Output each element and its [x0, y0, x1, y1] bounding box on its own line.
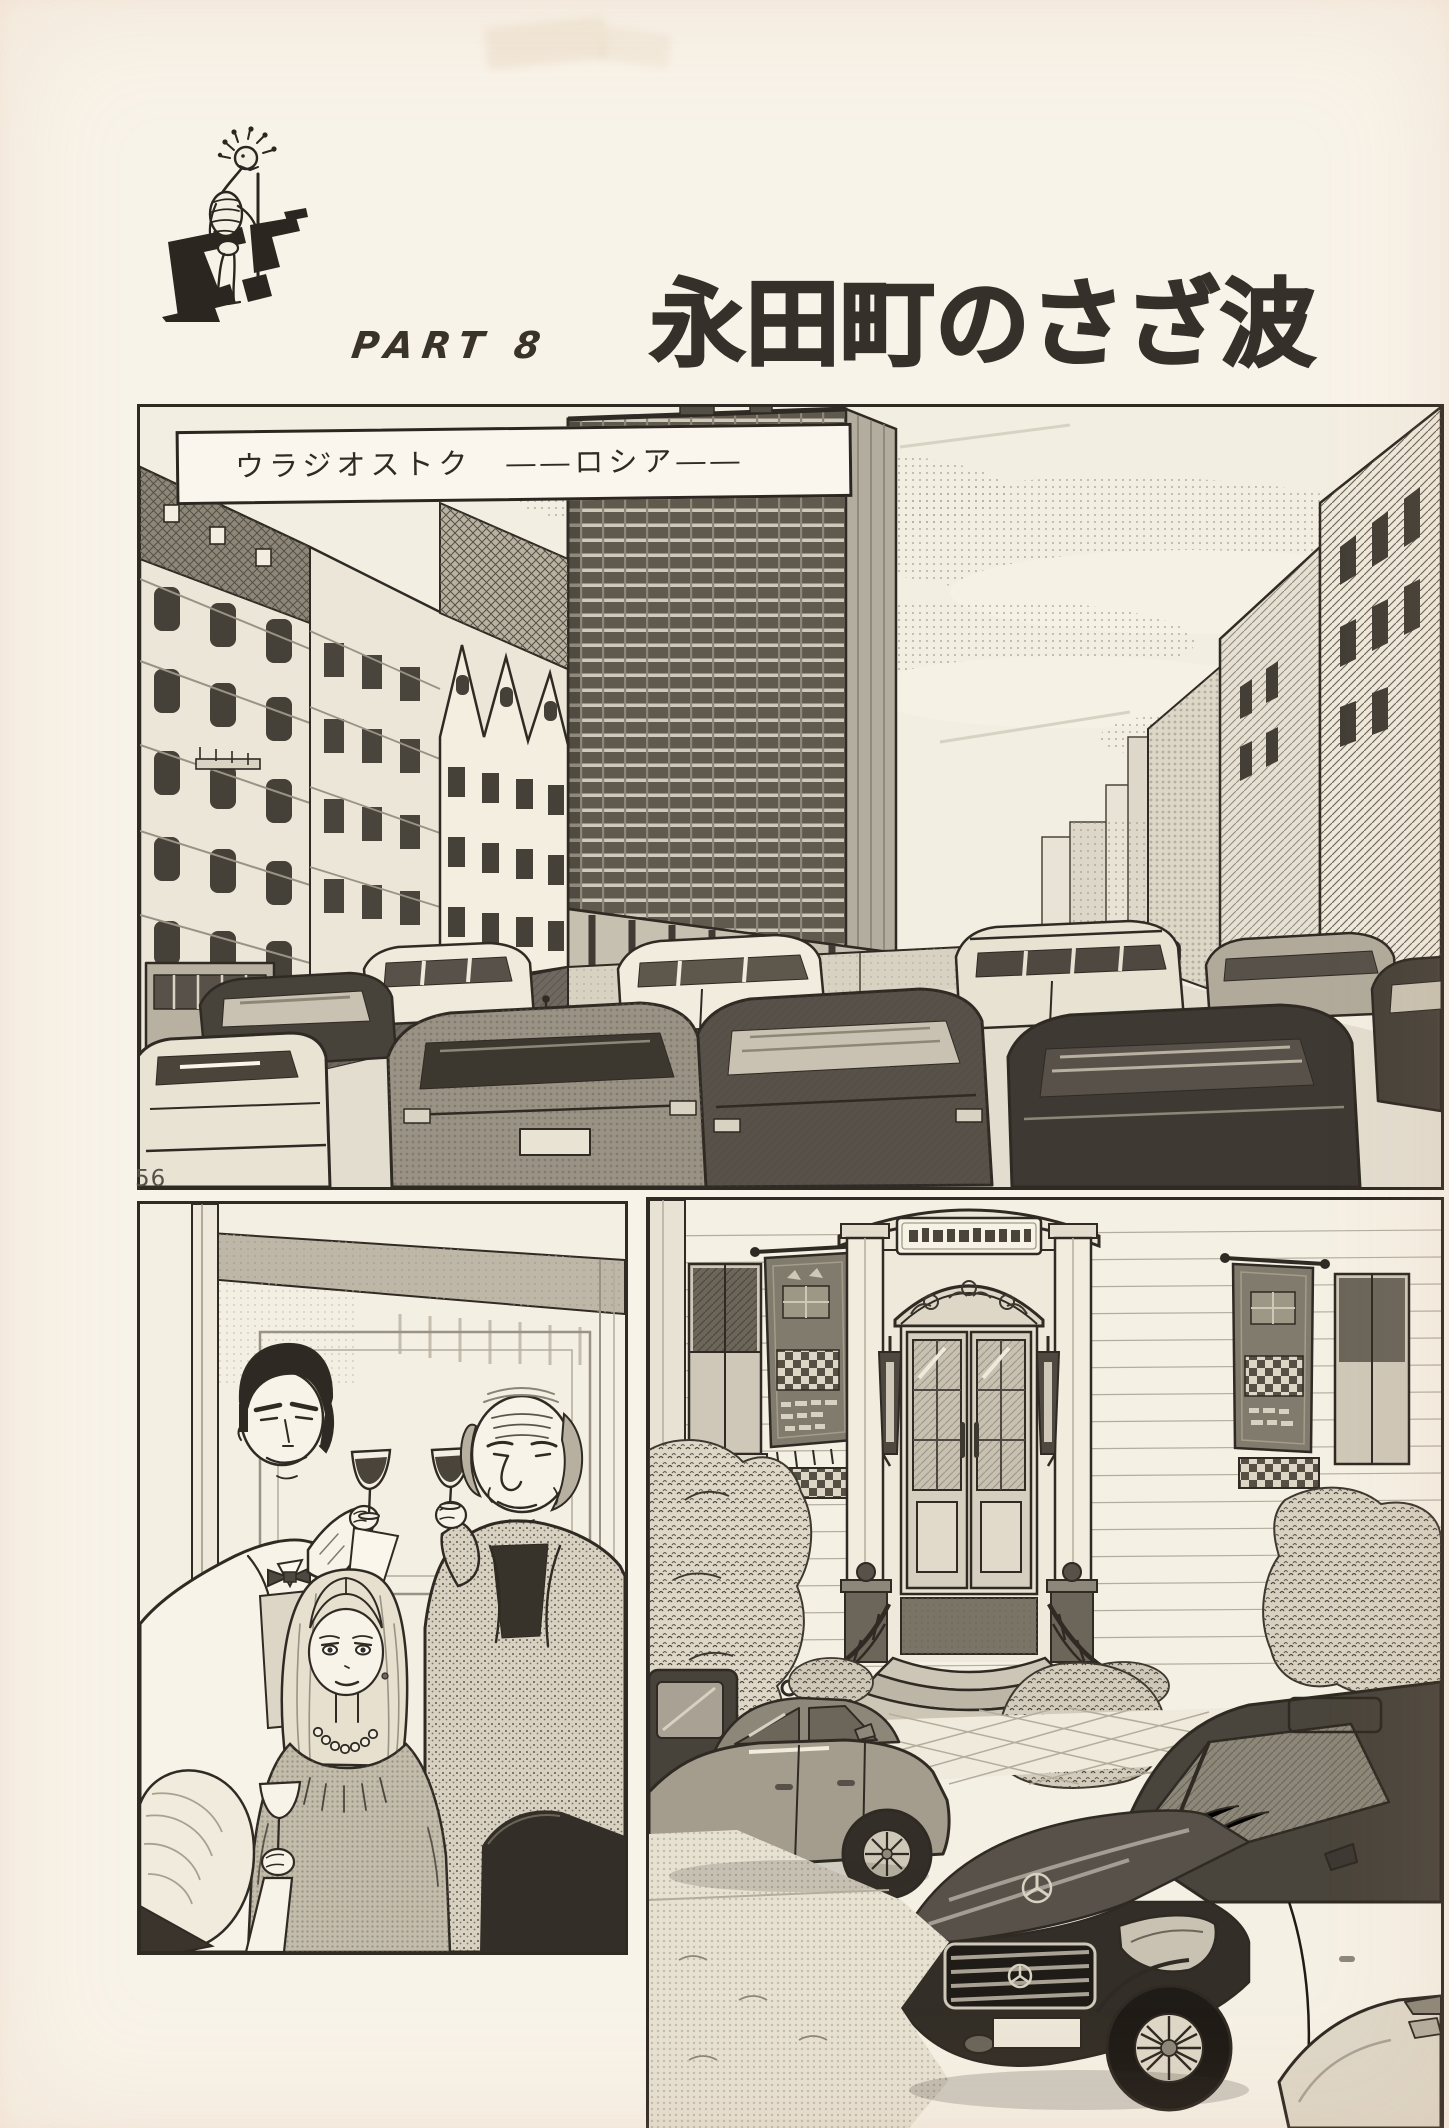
lantern-icon [879, 1336, 901, 1466]
chapter-title: 永田町のさざ波 [650, 278, 1315, 373]
car [1008, 1005, 1360, 1187]
panel-entrance-scene [646, 1197, 1444, 2128]
series-logo [154, 120, 318, 322]
part-label: PART 8 [349, 324, 552, 367]
foreground-dark-figure [480, 1810, 625, 1952]
panel-city-scene: ウラジオストク ――ロシア―― [137, 404, 1444, 1190]
bleed-through-mark [598, 25, 672, 68]
car [1372, 957, 1441, 1111]
skeleton-logo-icon [154, 120, 318, 322]
lantern-icon [1037, 1336, 1059, 1466]
manga-page: PART 8 永田町のさざ波 [0, 0, 1449, 2128]
mercedes-grille [945, 1944, 1095, 2008]
panel-party-scene [137, 1201, 628, 1955]
car [388, 1003, 706, 1187]
bleed-through-mark [484, 16, 608, 70]
location-caption: ウラジオストク ――ロシア―― [176, 423, 853, 505]
car [140, 1033, 330, 1187]
right-window [1335, 1274, 1409, 1464]
entrance-illustration [649, 1200, 1441, 2128]
foreground-woman-head [140, 1770, 300, 1952]
party-illustration [140, 1204, 625, 1952]
entrance-sign [897, 1218, 1041, 1254]
left-window [683, 1264, 767, 1464]
car [696, 989, 992, 1187]
city-illustration [140, 407, 1441, 1187]
page-number: 56 [135, 1166, 166, 1192]
